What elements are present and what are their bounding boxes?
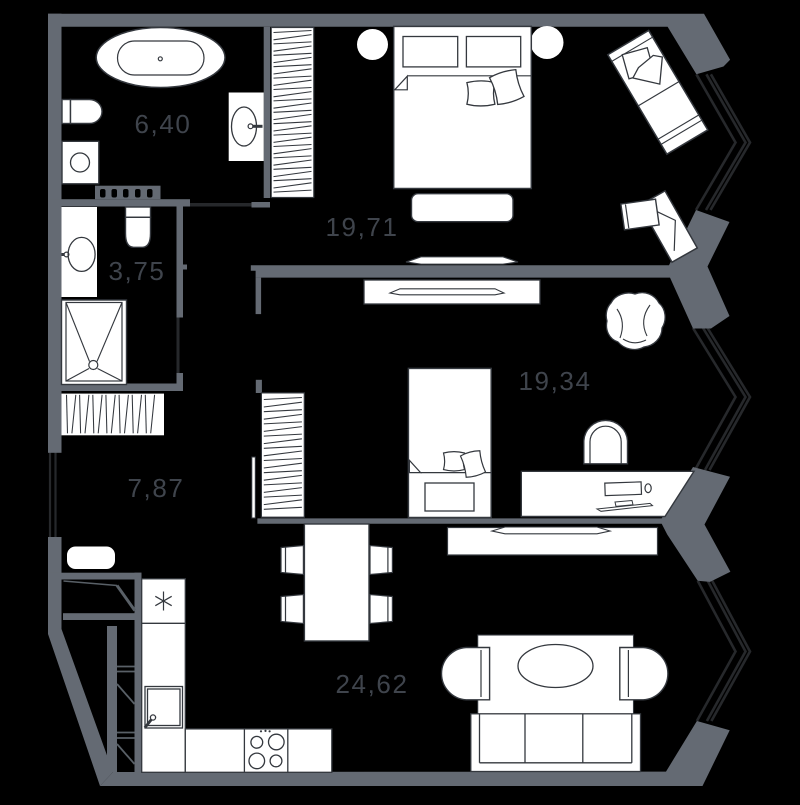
svg-text:3,75: 3,75 [108,256,165,286]
svg-text:19,71: 19,71 [325,212,398,242]
svg-text:24,62: 24,62 [335,669,408,699]
svg-text:6,40: 6,40 [134,109,191,139]
svg-text:7,87: 7,87 [127,473,184,503]
svg-text:19,34: 19,34 [518,366,591,396]
